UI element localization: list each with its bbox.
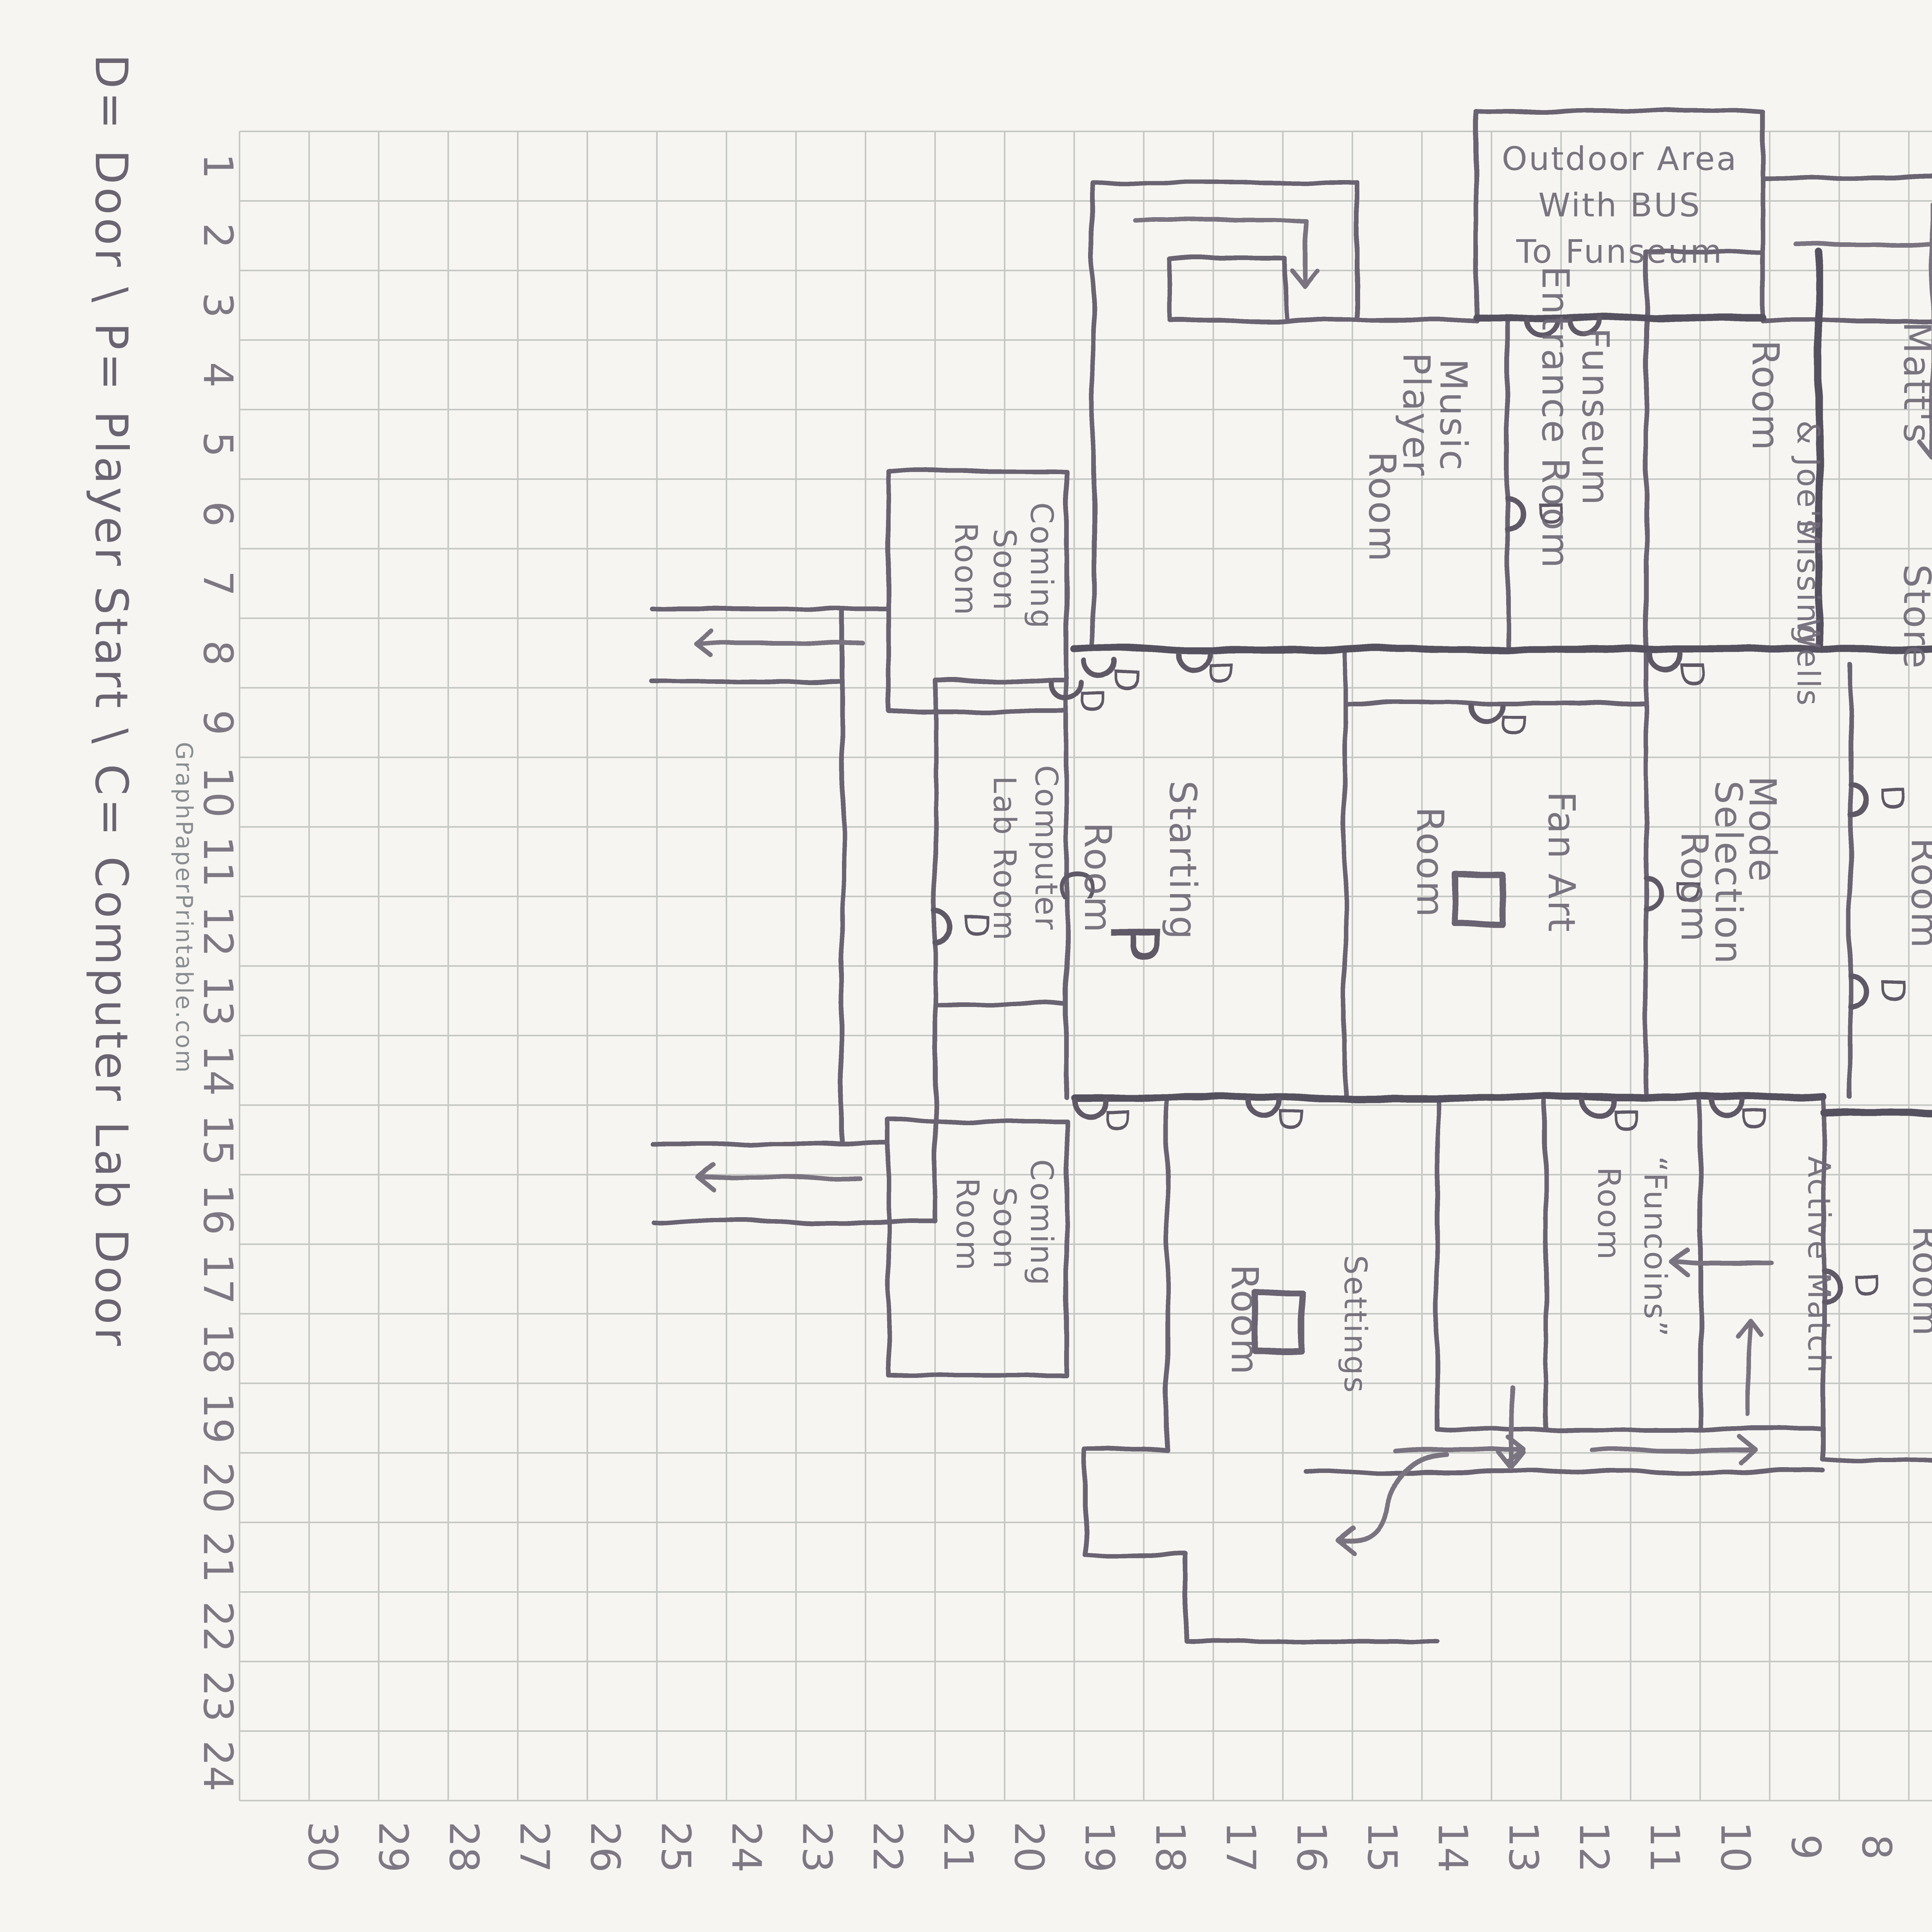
room-label-coming2-2: Soon [986, 1187, 1022, 1270]
axis-number-bottom: 11 [1641, 1821, 1688, 1872]
room-label-active-match: Active Match [1801, 1156, 1837, 1374]
axis-number-bottom: 10 [1712, 1821, 1759, 1872]
axis-number-left: 23 [194, 1671, 241, 1722]
room-label-starting-2: Room [1076, 822, 1119, 934]
axis-number-bottom: 28 [440, 1821, 487, 1872]
axis-number-bottom: 24 [723, 1821, 770, 1872]
axis-number-bottom: 18 [1146, 1821, 1194, 1872]
door-letter: D [1606, 1107, 1644, 1132]
axis-number-bottom: 22 [864, 1821, 911, 1872]
axis-number-left: 5 [194, 432, 241, 457]
room-label-starting-1: Starting [1161, 781, 1204, 941]
axis-number-left: 18 [194, 1323, 241, 1374]
axis-number-left: 12 [194, 906, 241, 957]
axis-number-left: 8 [194, 640, 241, 666]
room-label-coming1-2: Soon [986, 529, 1022, 612]
axis-number-bottom: 15 [1359, 1821, 1406, 1872]
door-letter: D [1097, 1107, 1135, 1132]
door-letter: D [1272, 1107, 1310, 1132]
axis-number-left: 1 [194, 153, 241, 179]
door-letter: D [1201, 660, 1239, 685]
room-label-fanart-2: Room [1408, 807, 1452, 918]
axis-number-bottom: 21 [935, 1821, 982, 1872]
room-label-funseum-2: Entrance Room [1534, 266, 1577, 570]
door-letter: D [1108, 668, 1146, 693]
axis-number-bottom: 29 [370, 1821, 417, 1872]
axis-number-bottom: 19 [1076, 1821, 1123, 1872]
room-label-matts-1: Matt's [1895, 321, 1932, 444]
room-label-coming1-1: Coming [1024, 502, 1060, 630]
scanned-map-page: DDDDDDDDDDDDDDDCP Outdoor Area With BUS … [0, 0, 1932, 1932]
room-label-music-1: Music [1432, 359, 1475, 472]
room-label-fanart-1: Fan Art [1540, 791, 1583, 933]
door-letter: D [1873, 785, 1911, 810]
room-label-outside-4: Room [1903, 838, 1932, 949]
axis-number-left: 9 [194, 710, 241, 735]
door-letter: D [1495, 713, 1532, 738]
room-label-funseum-1: Funseum [1574, 328, 1617, 507]
axis-number-bottom: 14 [1429, 1821, 1476, 1872]
axis-number-bottom: 25 [652, 1821, 699, 1872]
room-label-matts-6: Wells [1790, 618, 1826, 707]
axis-number-left: 7 [194, 571, 241, 596]
axis-number-bottom: 16 [1288, 1821, 1335, 1872]
room-label-outdoor-1: Outdoor Area [1502, 140, 1738, 178]
room-label-outdoor-2: With BUS [1538, 186, 1701, 224]
room-label-matts-7: Room [1744, 340, 1787, 452]
axis-number-bottom: 23 [793, 1821, 840, 1872]
watermark-text: GraphPaperPrintable.com [170, 742, 197, 1074]
axis-number-left: 20 [194, 1462, 241, 1513]
room-label-complab-2: Lab Room [986, 776, 1022, 942]
room-label-eventhub-2: Room [1905, 1226, 1932, 1337]
room-label-settings-2: Room [1223, 1264, 1266, 1376]
door-letter: D [1847, 1272, 1885, 1297]
room-label-funcoins-1: “Funcoins” [1637, 1156, 1673, 1338]
room-label-complab-1: Computer [1028, 765, 1064, 931]
room-label-coming2-3: Room [949, 1178, 985, 1272]
room-label-mode-3: Room [1673, 832, 1716, 943]
axis-number-bottom: 9 [1782, 1834, 1830, 1860]
door-letter: D [1672, 660, 1710, 685]
axis-number-left: 17 [194, 1253, 241, 1304]
axis-number-bottom: 7 [1923, 1834, 1932, 1860]
axis-number-left: 19 [194, 1393, 241, 1444]
axis-number-bottom: 27 [511, 1821, 558, 1872]
axis-number-left: 2 [194, 223, 241, 248]
door-letter: D [1873, 977, 1911, 1002]
door-letter: D [1074, 689, 1112, 714]
axis-number-left: 22 [194, 1601, 241, 1652]
room-label-music-3: Room [1361, 451, 1404, 563]
axis-number-left: 3 [194, 293, 241, 318]
room-label-settings-1: Settings [1337, 1255, 1373, 1394]
axis-number-bottom: 12 [1570, 1821, 1617, 1872]
room-label-outdoor-3: To Funseum [1516, 233, 1723, 270]
axis-number-left: 10 [194, 767, 241, 818]
axis-number-bottom: 20 [1005, 1821, 1053, 1872]
axis-number-left: 21 [194, 1532, 241, 1583]
axis-number-bottom: 8 [1853, 1834, 1900, 1860]
axis-number-left: 15 [194, 1114, 241, 1165]
axis-number-left: 24 [194, 1740, 241, 1791]
axis-number-bottom: 30 [299, 1821, 346, 1872]
room-label-funcoins-2: Room [1591, 1167, 1627, 1261]
room-label-matts-3: Store [1895, 564, 1932, 670]
door-letter: D [1736, 1107, 1774, 1132]
room-label-coming2-1: Coming [1024, 1159, 1060, 1287]
axis-number-left: 16 [194, 1184, 241, 1235]
legend-text: D= Door \ P= Player Start \ C= Computer … [85, 54, 137, 1349]
axis-number-bottom: 13 [1500, 1821, 1547, 1872]
axis-number-left: 14 [194, 1045, 241, 1096]
axis-number-left: 6 [194, 501, 241, 527]
axis-number-left: 13 [194, 975, 241, 1026]
axis-number-left: 11 [194, 836, 241, 887]
room-label-coming1-3: Room [948, 522, 984, 617]
axis-number-bottom: 17 [1217, 1821, 1264, 1872]
axis-number-left: 4 [194, 362, 241, 388]
axis-number-bottom: 26 [582, 1821, 629, 1872]
